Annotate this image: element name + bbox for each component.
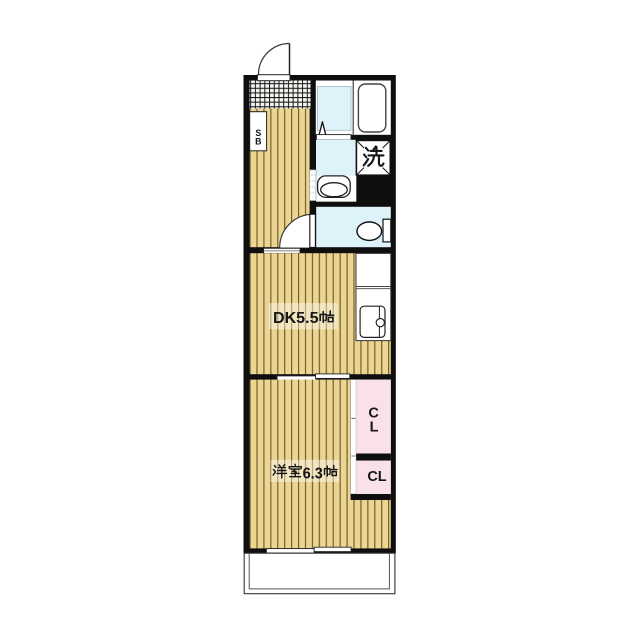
svg-text:6.3: 6.3	[303, 465, 324, 482]
svg-text:CL: CL	[367, 469, 386, 485]
svg-text:DK5.5: DK5.5	[273, 310, 319, 327]
svg-text:B: B	[255, 137, 261, 147]
svg-text:L: L	[370, 419, 379, 435]
